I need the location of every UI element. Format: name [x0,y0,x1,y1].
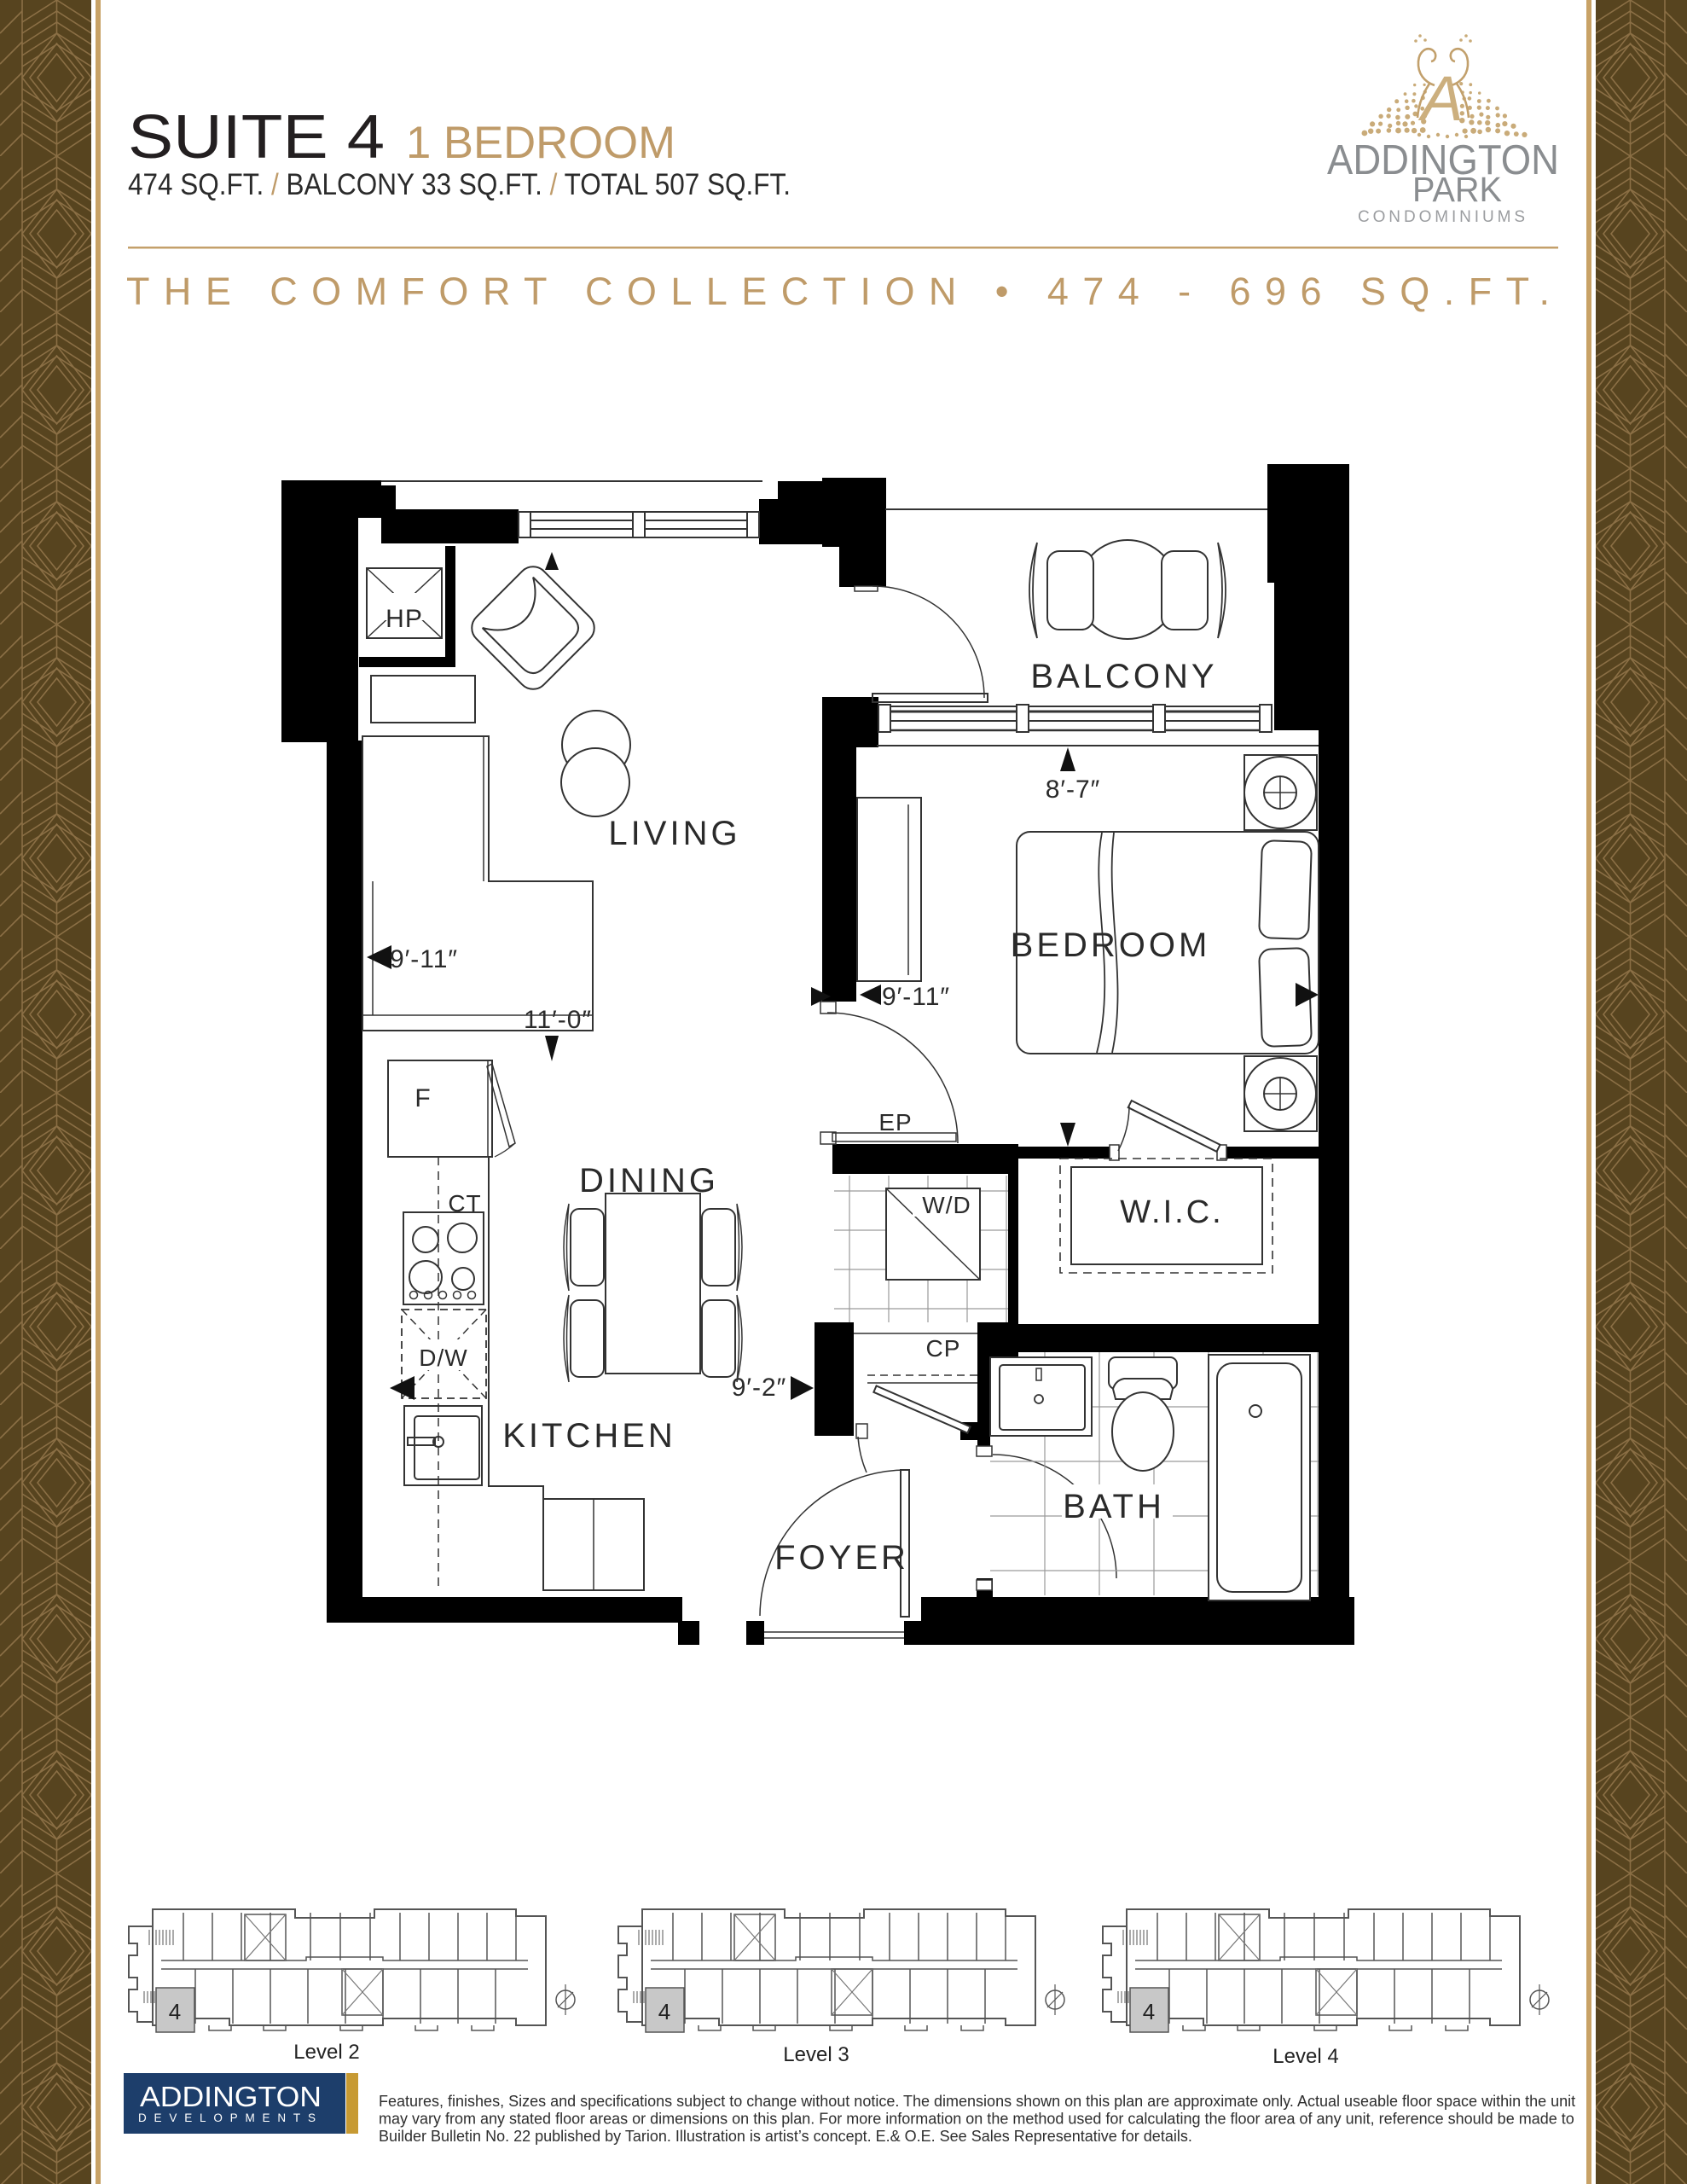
svg-text:BATH: BATH [1063,1488,1165,1525]
svg-text:9′-2″: 9′-2″ [732,1374,787,1402]
svg-text:DEVELOPMENTS: DEVELOPMENTS [138,2111,322,2124]
svg-text:W.I.C.: W.I.C. [1120,1194,1223,1230]
svg-text:F: F [415,1084,431,1112]
svg-text:may vary from any stated floor: may vary from any stated floor areas or … [379,2111,1574,2128]
svg-text:9′-11″: 9′-11″ [390,945,458,973]
svg-text:CP: CP [926,1335,961,1362]
svg-text:EP: EP [878,1109,912,1136]
svg-text:D/W: D/W [419,1345,467,1371]
svg-text:474 SQ.FT. / BALCONY 33 SQ.FT.: 474 SQ.FT. / BALCONY 33 SQ.FT. / TOTAL 5… [128,168,791,201]
svg-text:FOYER: FOYER [774,1539,909,1577]
svg-text:8′-7″: 8′-7″ [1046,775,1101,804]
svg-text:Features, finishes, Sizes and: Features, finishes, Sizes and specificat… [379,2093,1575,2110]
svg-text:BEDROOM: BEDROOM [1011,926,1211,964]
svg-text:CONDOMINIUMS: CONDOMINIUMS [1358,208,1528,226]
svg-text:9′-11″: 9′-11″ [882,983,950,1011]
svg-text:A: A [1417,63,1463,134]
svg-text:HP: HP [386,605,423,633]
svg-text:SUITE 4: SUITE 4 [128,103,385,171]
svg-text:Builder Bulletin No. 22 publis: Builder Bulletin No. 22 published by Tar… [379,2128,1192,2145]
svg-text:LIVING: LIVING [608,815,740,852]
svg-text:11′-0″: 11′-0″ [524,1006,592,1034]
svg-text:PARK: PARK [1412,170,1502,209]
svg-text:BALCONY: BALCONY [1030,658,1217,695]
svg-text:ADDINGTON: ADDINGTON [140,2081,322,2112]
svg-text:1 BEDROOM: 1 BEDROOM [406,118,675,168]
svg-text:THE COMFORT COLLECTION • 474 -: THE COMFORT COLLECTION • 474 - 696 SQ.FT… [126,270,1561,313]
svg-text:W/D: W/D [922,1192,971,1218]
svg-text:KITCHEN: KITCHEN [502,1417,676,1455]
